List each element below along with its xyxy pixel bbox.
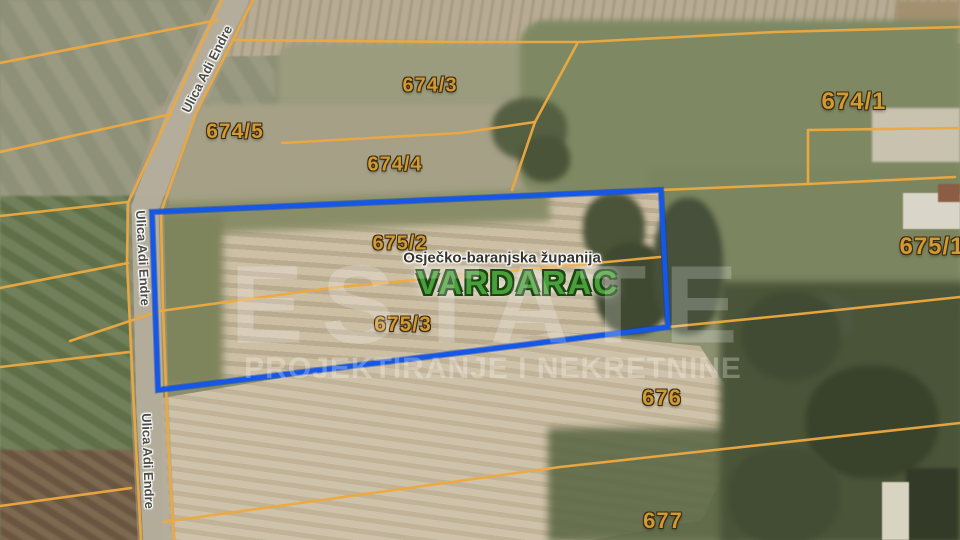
map-canvas[interactable]: 674/3674/5674/4674/1675/2675/3675/167667… [0, 0, 960, 540]
street-name-label: Ulica Adi Endre [133, 210, 153, 306]
parcel-number-label: 676 [642, 385, 682, 411]
parcel-number-label: 674/5 [206, 120, 264, 144]
settlement-label: VARDARAC [417, 264, 619, 302]
parcel-number-label: 674/4 [367, 154, 422, 177]
map-labels-layer: 674/3674/5674/4674/1675/2675/3675/167667… [0, 0, 960, 540]
parcel-number-label: 675/3 [374, 313, 432, 337]
parcel-number-label: 674/1 [821, 88, 886, 116]
parcel-number-label: 675/1 [899, 233, 960, 261]
parcel-number-label: 677 [643, 508, 683, 534]
street-name-label: Ulica Adi Endre [179, 23, 236, 115]
street-name-label: Ulica Adi Endre [139, 413, 157, 509]
parcel-number-label: 674/3 [402, 75, 457, 98]
